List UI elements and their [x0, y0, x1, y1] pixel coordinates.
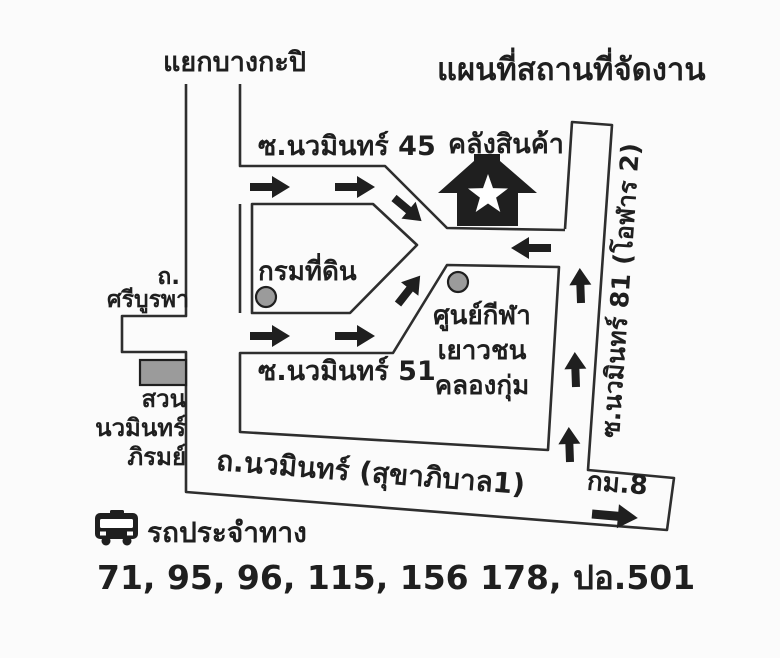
sri-burapha-label-line2: ศรีบูรพา — [107, 287, 189, 314]
bus-front-icon — [95, 510, 138, 546]
bus-light-right — [127, 532, 133, 536]
land-department-label: กรมที่ดิน — [258, 252, 357, 287]
page-title: แผนที่สถานที่จัดงาน — [437, 47, 706, 88]
house-with-star-icon — [438, 154, 537, 226]
soi45-label: ซ.นวมินทร์ 45 — [258, 130, 436, 162]
arrow-right-soi45-2 — [335, 176, 375, 198]
park-label-line3: ภิรมย์ — [127, 443, 186, 471]
sports-center-label-line3: คลองกุ่ม — [435, 371, 530, 402]
bus-windshield — [100, 519, 133, 528]
arrow-left-below-warehouse — [511, 237, 551, 259]
land-department-marker — [256, 287, 276, 307]
bus-route-numbers: 71, 95, 96, 115, 156 178, ปอ.501 — [97, 558, 695, 597]
bus-legend: รถประจำทาง 71, 95, 96, 115, 156 178, ปอ.… — [95, 510, 695, 597]
arrow-right-soi51-2 — [335, 325, 375, 347]
park-label-line2: นวมินทร์ — [95, 414, 186, 442]
park-marker — [140, 360, 186, 385]
sports-center-marker — [448, 272, 468, 292]
arrow-up-soi81-3 — [558, 427, 581, 463]
arrow-up-soi81-2 — [564, 352, 587, 388]
bus-routes-legend-label: รถประจำทาง — [147, 516, 307, 549]
park-label-line1: สวน — [141, 385, 186, 413]
warehouse-label: คลังสินค้า — [448, 129, 564, 160]
arrow-right-soi51-1 — [250, 325, 290, 347]
soi81-label: ซ.นวมินทร์ 81 (โอฬาร 2) — [595, 142, 646, 439]
sports-center-label-line1: ศูนย์กีฬา — [433, 300, 531, 332]
arrow-right-soi45-1 — [250, 176, 290, 198]
arrow-up-soi81-1 — [569, 268, 592, 304]
km8-label: กม.8 — [586, 466, 649, 501]
event-venue-map: แยกบางกะปิ แผนที่สถานที่จัดงาน ซ.นวมินทร… — [0, 0, 780, 658]
soi51-label: ซ.นวมินทร์ 51 — [258, 355, 436, 387]
nawamin-road-label: ถ.นวมินทร์ (สุขาภิบาล1) — [215, 444, 526, 502]
bus-light-left — [100, 532, 106, 536]
sports-center-label-line2: เยาวชน — [438, 336, 527, 366]
bangkapi-junction-label: แยกบางกะปิ — [163, 47, 306, 78]
